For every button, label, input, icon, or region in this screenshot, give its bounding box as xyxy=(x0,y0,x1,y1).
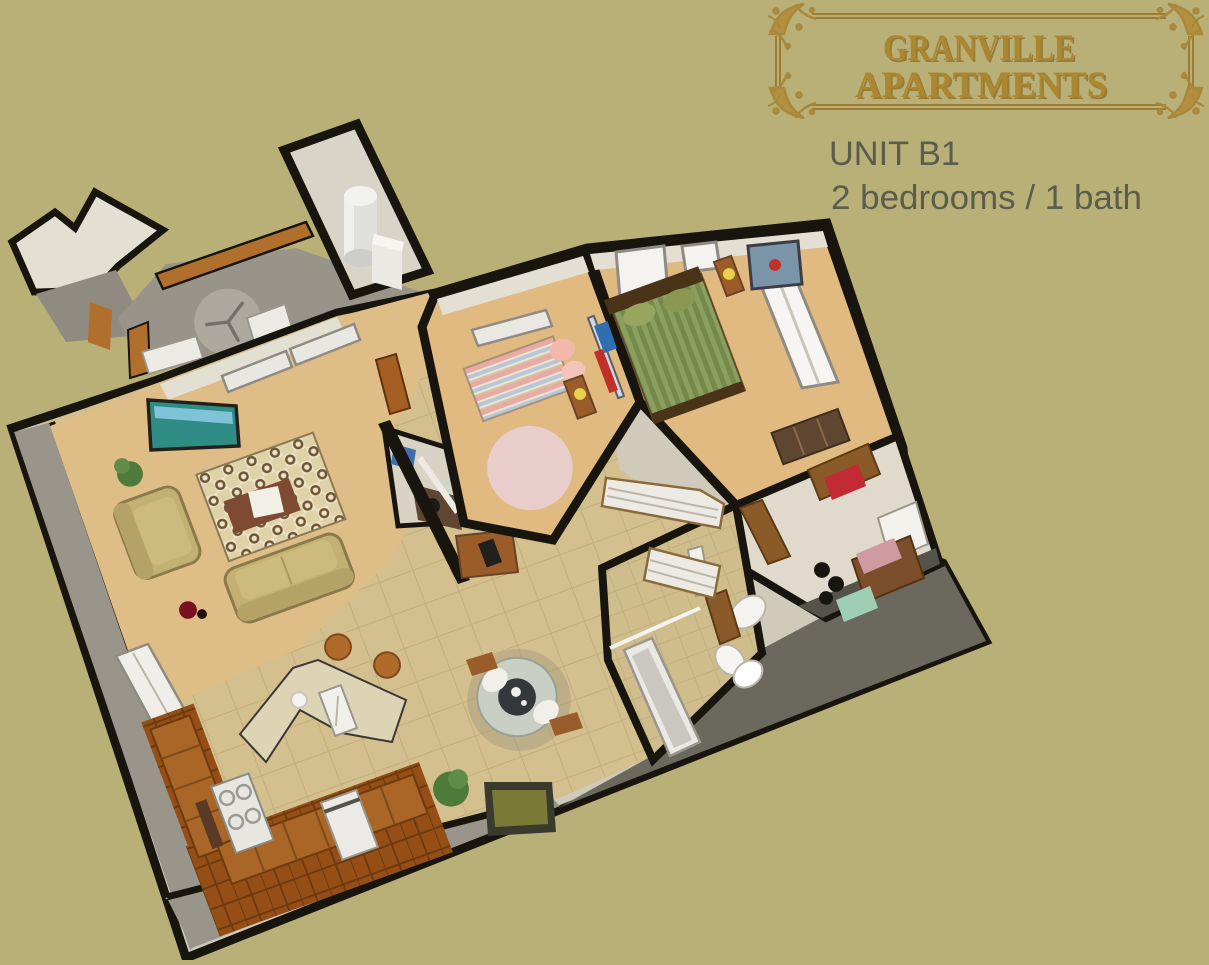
svg-text:UNIT B1: UNIT B1 xyxy=(829,135,960,173)
svg-text:GRANVILLE: GRANVILLE xyxy=(883,28,1075,69)
svg-text:APARTMENTS: APARTMENTS xyxy=(855,65,1107,106)
svg-text:2 bedrooms / 1 bath: 2 bedrooms / 1 bath xyxy=(831,179,1142,217)
